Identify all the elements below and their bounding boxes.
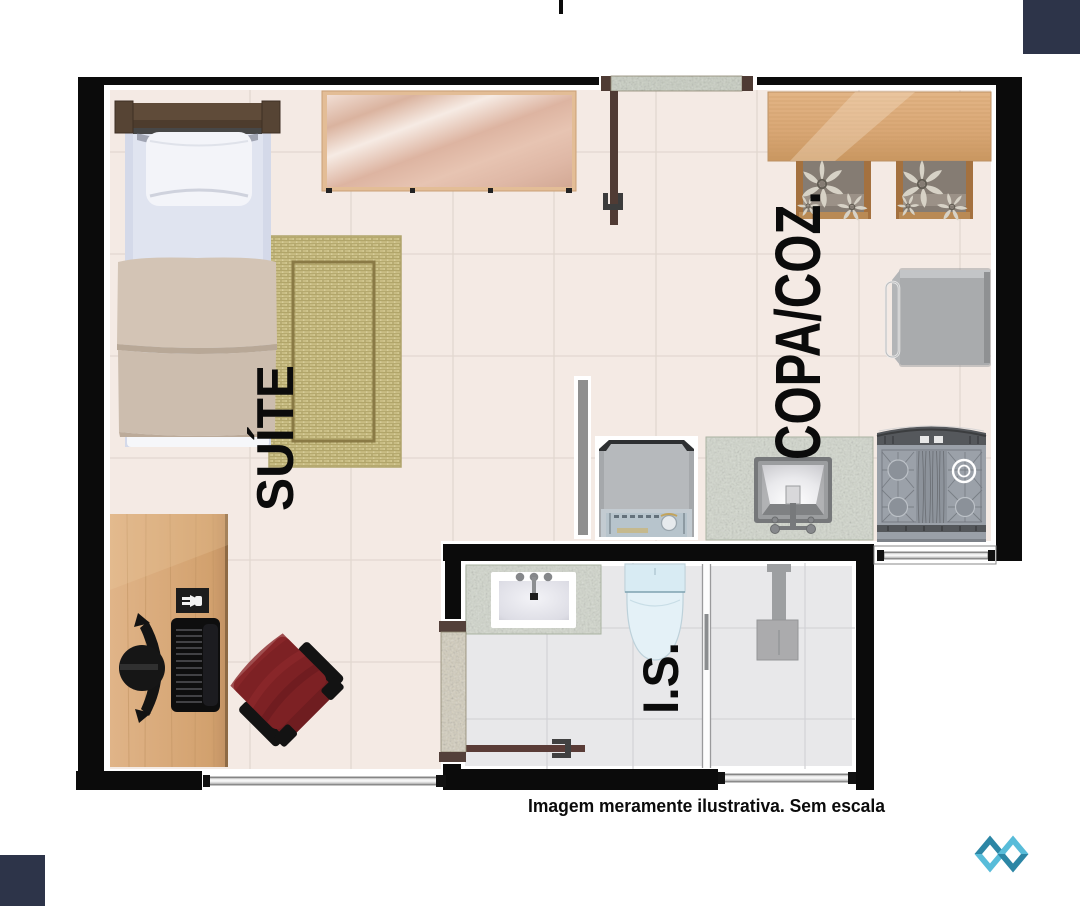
svg-text:SUÍTE: SUÍTE bbox=[247, 365, 305, 511]
svg-text:Imagem meramente ilustrativa.: Imagem meramente ilustrativa. Sem escala bbox=[528, 796, 886, 816]
svg-text:I.S.: I.S. bbox=[633, 642, 689, 714]
svg-text:COPA/COZ.: COPA/COZ. bbox=[762, 191, 834, 460]
